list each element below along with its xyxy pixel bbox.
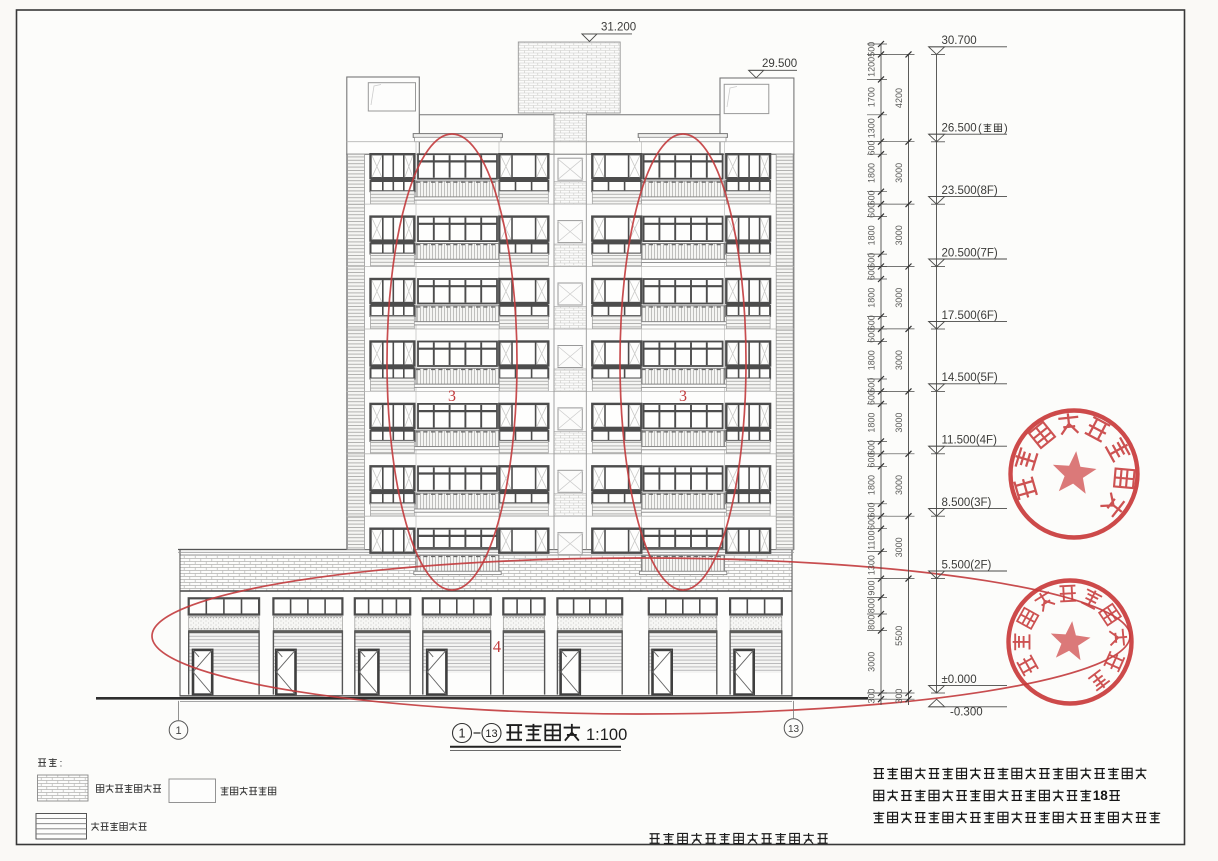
svg-text:300: 300 [867, 689, 877, 704]
svg-text:600: 600 [867, 265, 877, 280]
svg-text:3000: 3000 [894, 163, 904, 183]
svg-text:1300: 1300 [866, 118, 876, 138]
svg-text:14.500(5F): 14.500(5F) [942, 372, 998, 384]
svg-text:800: 800 [867, 598, 877, 613]
svg-text:1800: 1800 [867, 288, 877, 308]
svg-text:23.500(8F): 23.500(8F) [942, 185, 998, 197]
svg-text:300: 300 [894, 689, 904, 704]
svg-text:26.500: 26.500 [942, 123, 977, 135]
svg-text:5.500(2F): 5.500(2F) [942, 559, 992, 571]
svg-text:3: 3 [448, 388, 456, 405]
svg-text:1300: 1300 [867, 555, 877, 575]
svg-text:18: 18 [1093, 788, 1109, 803]
svg-text:20.500(7F): 20.500(7F) [942, 247, 998, 259]
svg-text:5500: 5500 [894, 626, 904, 646]
svg-text:3000: 3000 [894, 288, 904, 308]
svg-text:1700: 1700 [867, 87, 877, 107]
svg-text:4200: 4200 [894, 88, 904, 108]
svg-text:1800: 1800 [866, 163, 876, 183]
svg-text:8.500(3F): 8.500(3F) [942, 497, 992, 509]
svg-text:1800: 1800 [866, 350, 876, 370]
svg-text:17.500(6F): 17.500(6F) [942, 310, 998, 322]
svg-text:31.200: 31.200 [601, 22, 636, 34]
svg-text:3: 3 [679, 388, 687, 405]
svg-text:600: 600 [866, 203, 876, 218]
svg-text:900: 900 [866, 581, 876, 596]
svg-text:13: 13 [788, 724, 800, 735]
svg-text:±0.000: ±0.000 [942, 674, 977, 686]
svg-text:600: 600 [867, 328, 877, 343]
svg-text:3000: 3000 [894, 350, 904, 370]
svg-text:1800: 1800 [867, 475, 877, 495]
svg-text:3000: 3000 [894, 225, 904, 245]
svg-text:13: 13 [485, 728, 497, 740]
svg-text:3000: 3000 [894, 413, 904, 433]
svg-text:4: 4 [493, 637, 501, 656]
svg-text:1800: 1800 [866, 413, 876, 433]
svg-text:30.700: 30.700 [942, 35, 977, 47]
svg-text:1800: 1800 [866, 225, 876, 245]
svg-text:800: 800 [867, 615, 877, 630]
svg-text:1:100: 1:100 [586, 726, 627, 744]
svg-text:3000: 3000 [894, 475, 904, 495]
svg-text:600: 600 [867, 515, 877, 530]
svg-text:3000: 3000 [894, 537, 904, 557]
svg-text:(: ( [978, 123, 982, 135]
svg-text:-0.300: -0.300 [950, 707, 983, 719]
svg-text:600: 600 [866, 390, 876, 405]
svg-text:600: 600 [866, 453, 876, 468]
svg-text:3000: 3000 [867, 652, 877, 672]
svg-text:1100: 1100 [867, 530, 877, 549]
svg-text:1: 1 [175, 725, 181, 737]
svg-text:600: 600 [866, 140, 876, 155]
svg-text:29.500: 29.500 [762, 58, 797, 70]
svg-text::: : [60, 758, 63, 770]
svg-text:): ) [1004, 123, 1008, 135]
svg-text:11.500(4F): 11.500(4F) [942, 435, 998, 447]
svg-text:1200: 1200 [867, 57, 877, 77]
svg-text:1: 1 [459, 727, 466, 741]
